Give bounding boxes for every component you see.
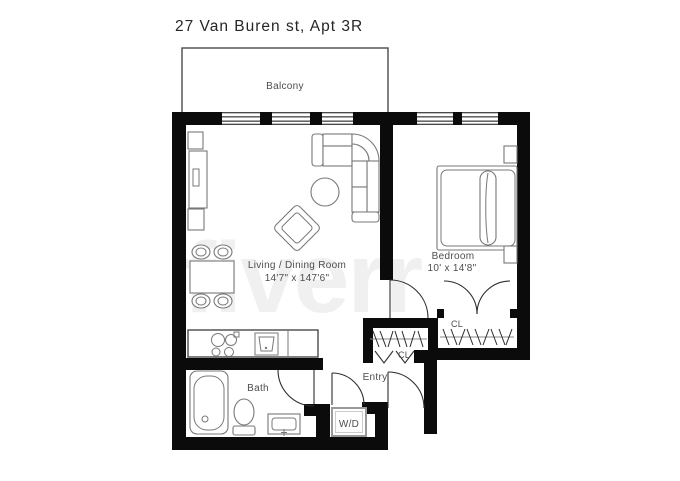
entry-door: [388, 372, 424, 408]
laundry-label: W/D: [339, 419, 359, 430]
page-title: 27 Van Buren st, Apt 3R: [175, 18, 363, 35]
wall-kitchen-bath: [186, 358, 323, 370]
dining-chair: [192, 245, 210, 259]
wall-right: [517, 112, 530, 360]
entry-label: Entry: [363, 372, 388, 383]
tv-unit: [188, 132, 207, 230]
window-1: [222, 112, 260, 125]
dining-chair: [214, 245, 232, 259]
wall-entry-left: [375, 414, 388, 450]
hall-closet-label: CL: [398, 350, 410, 360]
window-2: [272, 112, 310, 125]
wall-bedroom-divider: [380, 125, 393, 280]
nightstand-top: [504, 146, 517, 163]
balcony-label: Balcony: [266, 81, 304, 92]
bedroom-dimensions: 10' x 14'8": [427, 263, 476, 274]
bath-door: [278, 370, 314, 406]
bedroom-closet-rod: [440, 329, 514, 345]
bath-sink: [268, 414, 300, 436]
balcony: Balcony: [182, 48, 388, 114]
nightstand-bottom: [504, 246, 517, 263]
toilet: [233, 399, 255, 435]
dining-table: [190, 261, 234, 293]
kitchen-counter: [188, 330, 318, 357]
laundry-door: [332, 373, 364, 405]
bedroom-closet-label: CL: [451, 319, 463, 329]
wall-bedroom-closet-stub-left: [437, 309, 444, 318]
living-room-dimensions: 14'7" x 147'6": [265, 273, 330, 284]
wall-bottom: [172, 437, 388, 450]
floor-plan: fiverr ® 27 Van Buren st, Apt 3R Balcony: [0, 0, 680, 481]
wall-bedroom-closet-stub-right: [510, 309, 517, 318]
window-3: [322, 112, 353, 125]
bath-label: Bath: [247, 383, 269, 394]
bed: [437, 166, 517, 250]
window-4: [417, 112, 453, 125]
pillow: [480, 171, 496, 245]
floor-plan-page: fiverr ® 27 Van Buren st, Apt 3R Balcony: [0, 0, 680, 481]
wall-entry-right: [424, 360, 437, 434]
dining-chair: [214, 294, 232, 308]
wall-left: [172, 112, 186, 450]
bedroom-label: Bedroom: [432, 251, 475, 262]
washer-dryer: W/D: [332, 408, 366, 436]
window-5: [462, 112, 498, 125]
wall-hall-closet-left: [363, 318, 373, 363]
bathtub: [190, 371, 228, 434]
dining-chair: [192, 294, 210, 308]
coffee-table: [311, 178, 339, 206]
bedroom-closet-doors: [444, 281, 510, 314]
living-room-label: Living / Dining Room: [248, 260, 346, 271]
wall-bedroom-closet-bottom: [428, 348, 530, 360]
